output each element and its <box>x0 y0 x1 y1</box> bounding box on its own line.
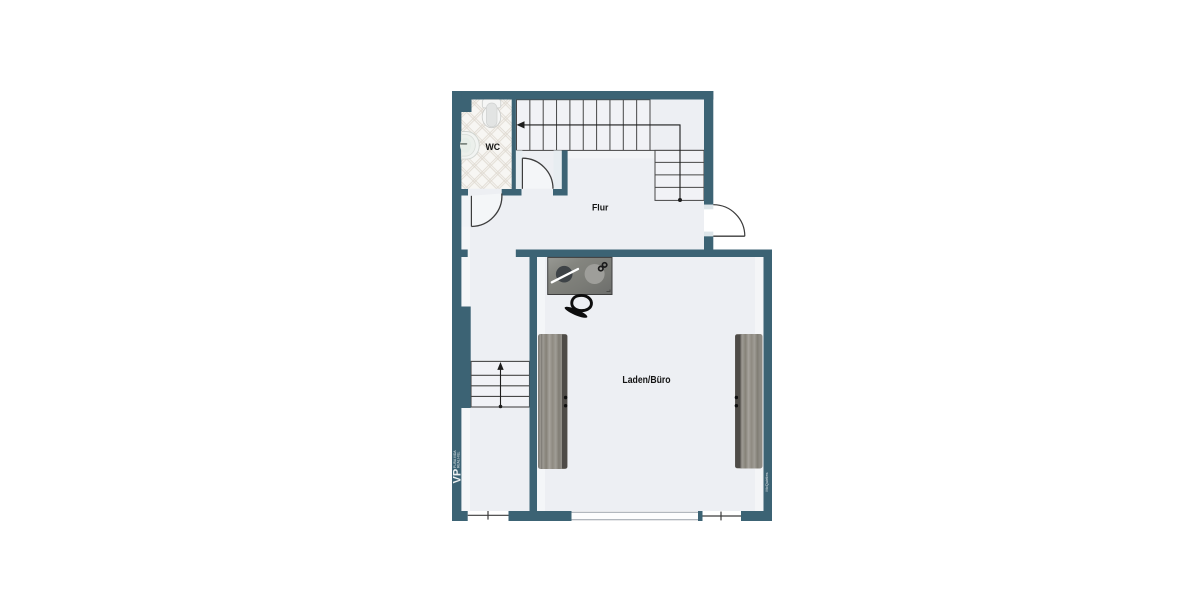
svg-text:Laden/Büro: Laden/Büro <box>622 375 670 386</box>
svg-text:McQuirtles: McQuirtles <box>764 472 769 491</box>
svg-text:Flur: Flur <box>592 203 609 213</box>
svg-text:WC: WC <box>486 142 501 152</box>
svg-text:REAL HILL: REAL HILL <box>457 451 461 468</box>
svg-text:VP: VP <box>451 469 463 484</box>
